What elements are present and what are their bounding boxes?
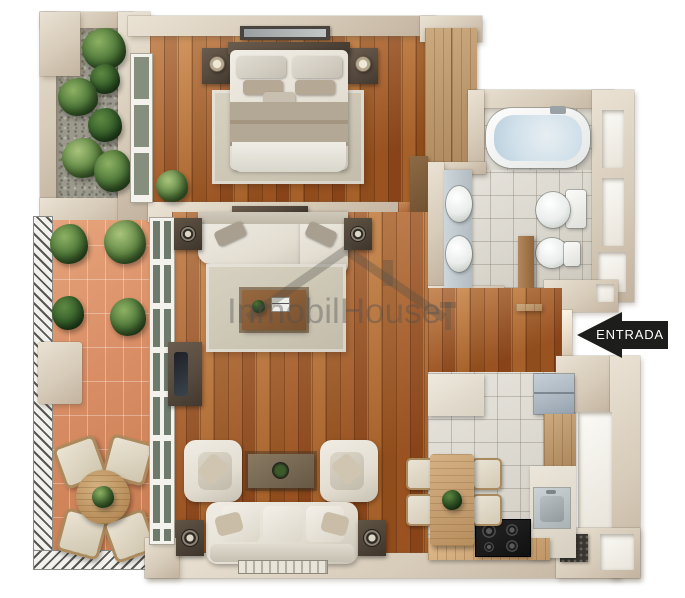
bed-throw (232, 142, 346, 172)
coffee-table-plant-icon (252, 300, 265, 313)
speaker-bottom-left (176, 520, 204, 556)
burner-icon (506, 540, 518, 552)
garden-plant-icon (94, 150, 132, 192)
bathroom-wall-upper-left (468, 90, 484, 172)
table-plant-icon (92, 486, 114, 508)
bedroom-window (131, 54, 152, 202)
side-table (248, 454, 314, 488)
wall-picture (240, 26, 330, 40)
burner-icon (482, 524, 496, 538)
hall-floor (428, 288, 562, 372)
bed-blanket (230, 102, 348, 146)
tv-stand (168, 342, 202, 406)
kitchen-sink (534, 488, 570, 528)
terrace-storage-box (38, 342, 82, 404)
bedroom-window-panes (134, 57, 149, 199)
wall-niche (602, 178, 624, 246)
corner-post-sw (145, 538, 179, 578)
speaker-cone-icon (180, 226, 196, 242)
garden-plant-icon (58, 78, 98, 116)
entrance-label: ENTRADA (592, 324, 668, 346)
terrace-plant-icon (104, 220, 146, 264)
speaker-top-left (174, 218, 202, 250)
hall-threshold (516, 304, 542, 311)
burner-icon (484, 542, 494, 552)
dining-table-plant-icon (442, 490, 462, 510)
armchair-right (320, 440, 378, 502)
sofa-backrest (198, 212, 348, 224)
terrace-plant-icon (50, 224, 88, 264)
kitchen-upper-counter (428, 374, 484, 416)
washbasin-bottom (446, 236, 472, 272)
garden-wall-corner-block (40, 12, 80, 76)
bathtub-water (494, 115, 582, 161)
kitchen-wood-cabinet (544, 414, 576, 466)
wall-niche (596, 284, 614, 302)
speaker-cone-icon (363, 529, 381, 547)
bathtub-faucet-icon (550, 106, 566, 114)
toilet (536, 192, 570, 228)
fridge-door-line (534, 392, 574, 394)
bidet-fixture (564, 242, 580, 266)
doormat (238, 560, 328, 574)
wall-niche (602, 110, 624, 168)
bed-accent-pillow (295, 80, 335, 95)
speaker-cone-icon (181, 529, 199, 547)
table-lamp-icon (355, 56, 371, 72)
bedroom-plant-icon (156, 170, 188, 202)
bed-pillow (292, 56, 342, 78)
bed-pillow (236, 56, 286, 78)
sink-basin (540, 496, 564, 522)
wardrobe-divider (451, 28, 452, 166)
speaker-top-right (344, 218, 372, 250)
floor-plan-image: InmobilHouse ENTRADA (0, 0, 685, 598)
terrace-plant-icon (110, 298, 146, 336)
wall-picture-art (244, 29, 326, 37)
utility-alcove (600, 534, 634, 570)
dining-chair (472, 494, 502, 526)
sink-faucet-icon (546, 490, 556, 494)
speaker-cone-icon (350, 226, 366, 242)
bathroom-door (518, 236, 534, 290)
decor-bowl-icon (272, 462, 289, 479)
terrace-plant-icon (52, 296, 84, 330)
bathtub (486, 108, 590, 168)
kitchen-alcove-shelf (578, 412, 612, 530)
entrance-jamb (562, 310, 572, 358)
bathroom-wall-left (428, 162, 444, 288)
burner-icon (506, 524, 518, 536)
three-seat-sofa (206, 502, 358, 564)
speaker-bottom-right (358, 520, 386, 556)
tv-screen (174, 352, 188, 396)
table-lamp-icon (209, 56, 225, 72)
armchair-left (184, 440, 242, 502)
sofa-cushion (263, 506, 303, 542)
washbasin-top (446, 186, 472, 222)
fridge (534, 374, 574, 414)
dining-chair (472, 458, 502, 490)
garden-plant-icon (88, 108, 122, 142)
coffee-table-books (272, 298, 289, 311)
